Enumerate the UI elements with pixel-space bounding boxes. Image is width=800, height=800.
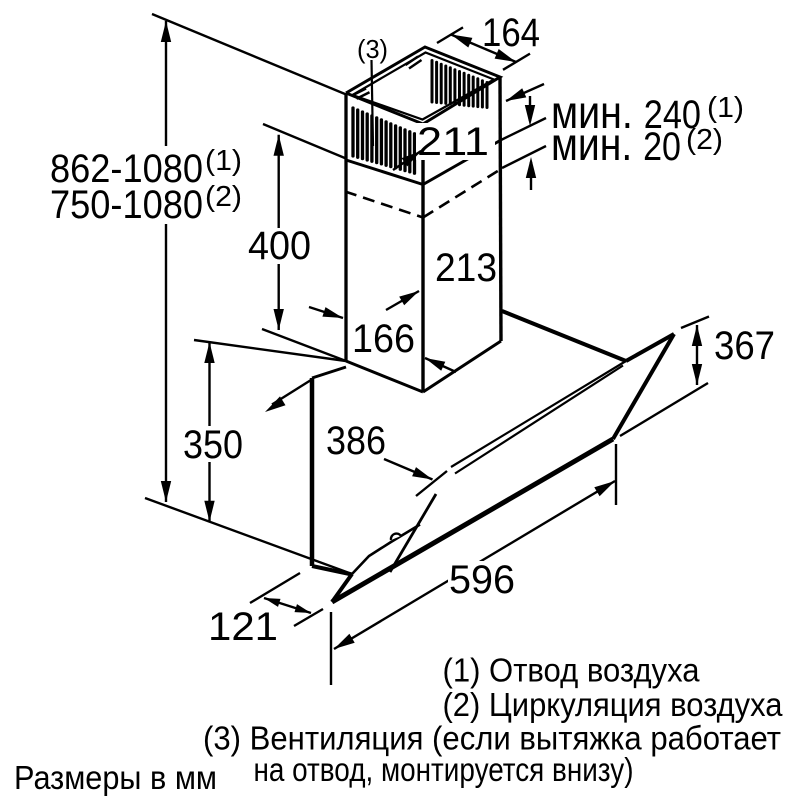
svg-text:121: 121: [208, 605, 278, 649]
svg-text:386: 386: [326, 419, 386, 463]
svg-text:мин. 20: мин. 20: [551, 118, 681, 170]
svg-text:400: 400: [248, 224, 311, 268]
svg-text:164: 164: [482, 11, 540, 55]
svg-text:596: 596: [449, 558, 515, 602]
svg-text:(2): (2): [205, 181, 242, 213]
svg-text:750-1080: 750-1080: [50, 183, 203, 227]
svg-text:(2) Циркуляция воздуха: (2) Циркуляция воздуха: [443, 687, 783, 724]
svg-text:(1): (1): [707, 92, 744, 124]
svg-text:(1) Отвод воздуха: (1) Отвод воздуха: [443, 653, 700, 690]
svg-text:(2): (2): [686, 124, 723, 156]
svg-text:на отвод, монтируется внизу): на отвод, монтируется внизу): [254, 752, 634, 789]
svg-text:(3): (3): [357, 34, 388, 64]
svg-text:211: 211: [417, 120, 489, 164]
svg-text:(1): (1): [205, 145, 242, 177]
svg-text:166: 166: [352, 317, 415, 361]
svg-text:367: 367: [714, 324, 775, 368]
svg-text:213: 213: [435, 246, 497, 290]
svg-text:Размеры в мм: Размеры в мм: [14, 760, 217, 797]
svg-text:350: 350: [183, 423, 243, 467]
